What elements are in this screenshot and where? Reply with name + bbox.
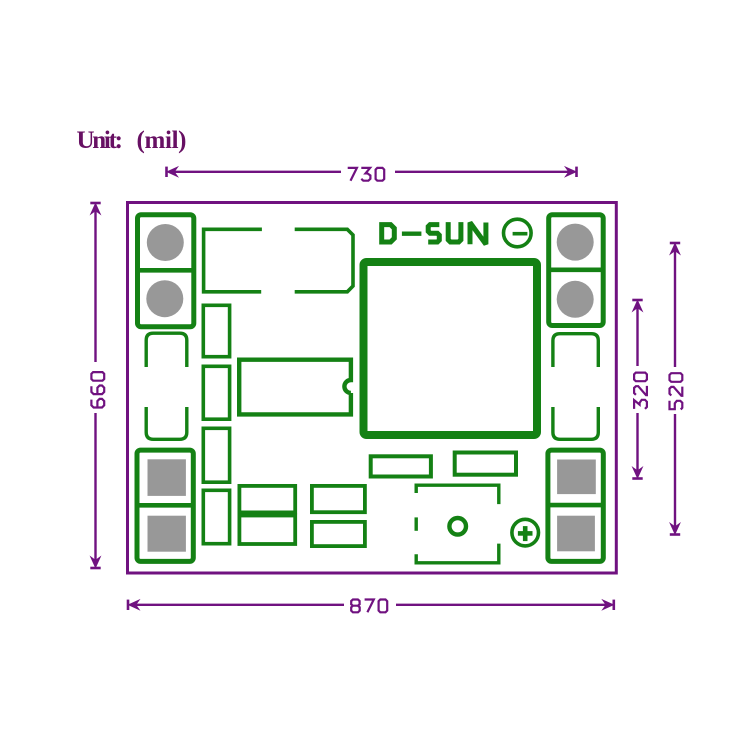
svg-text:Unit:: Unit:	[77, 127, 124, 154]
svg-text:(mil): (mil)	[137, 127, 187, 154]
